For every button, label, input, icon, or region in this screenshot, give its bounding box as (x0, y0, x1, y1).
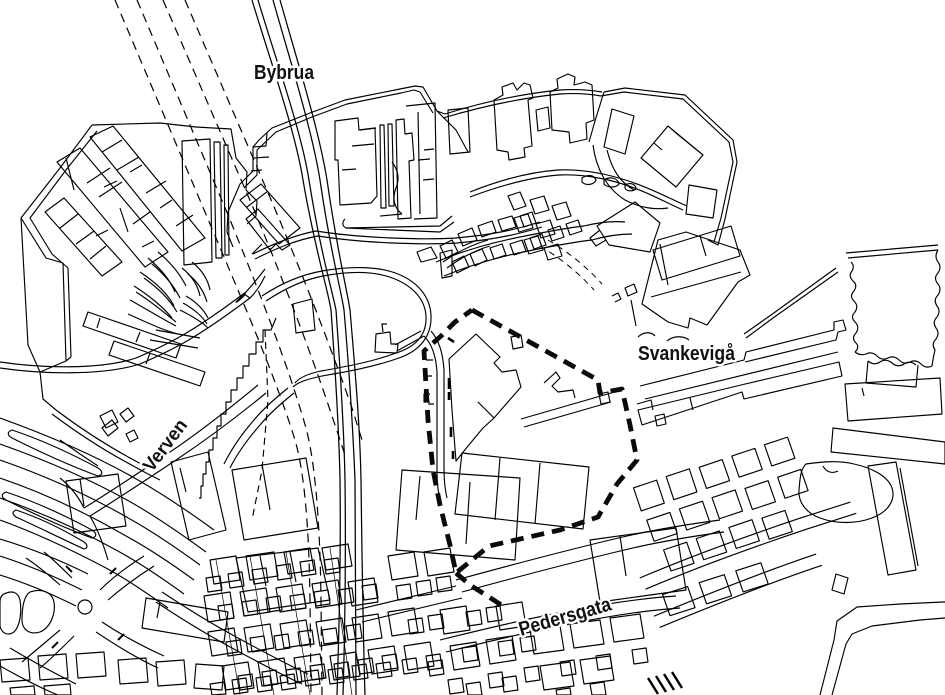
svg-text:Bybrua: Bybrua (254, 62, 315, 84)
svg-text:Svankevigå: Svankevigå (638, 342, 736, 365)
